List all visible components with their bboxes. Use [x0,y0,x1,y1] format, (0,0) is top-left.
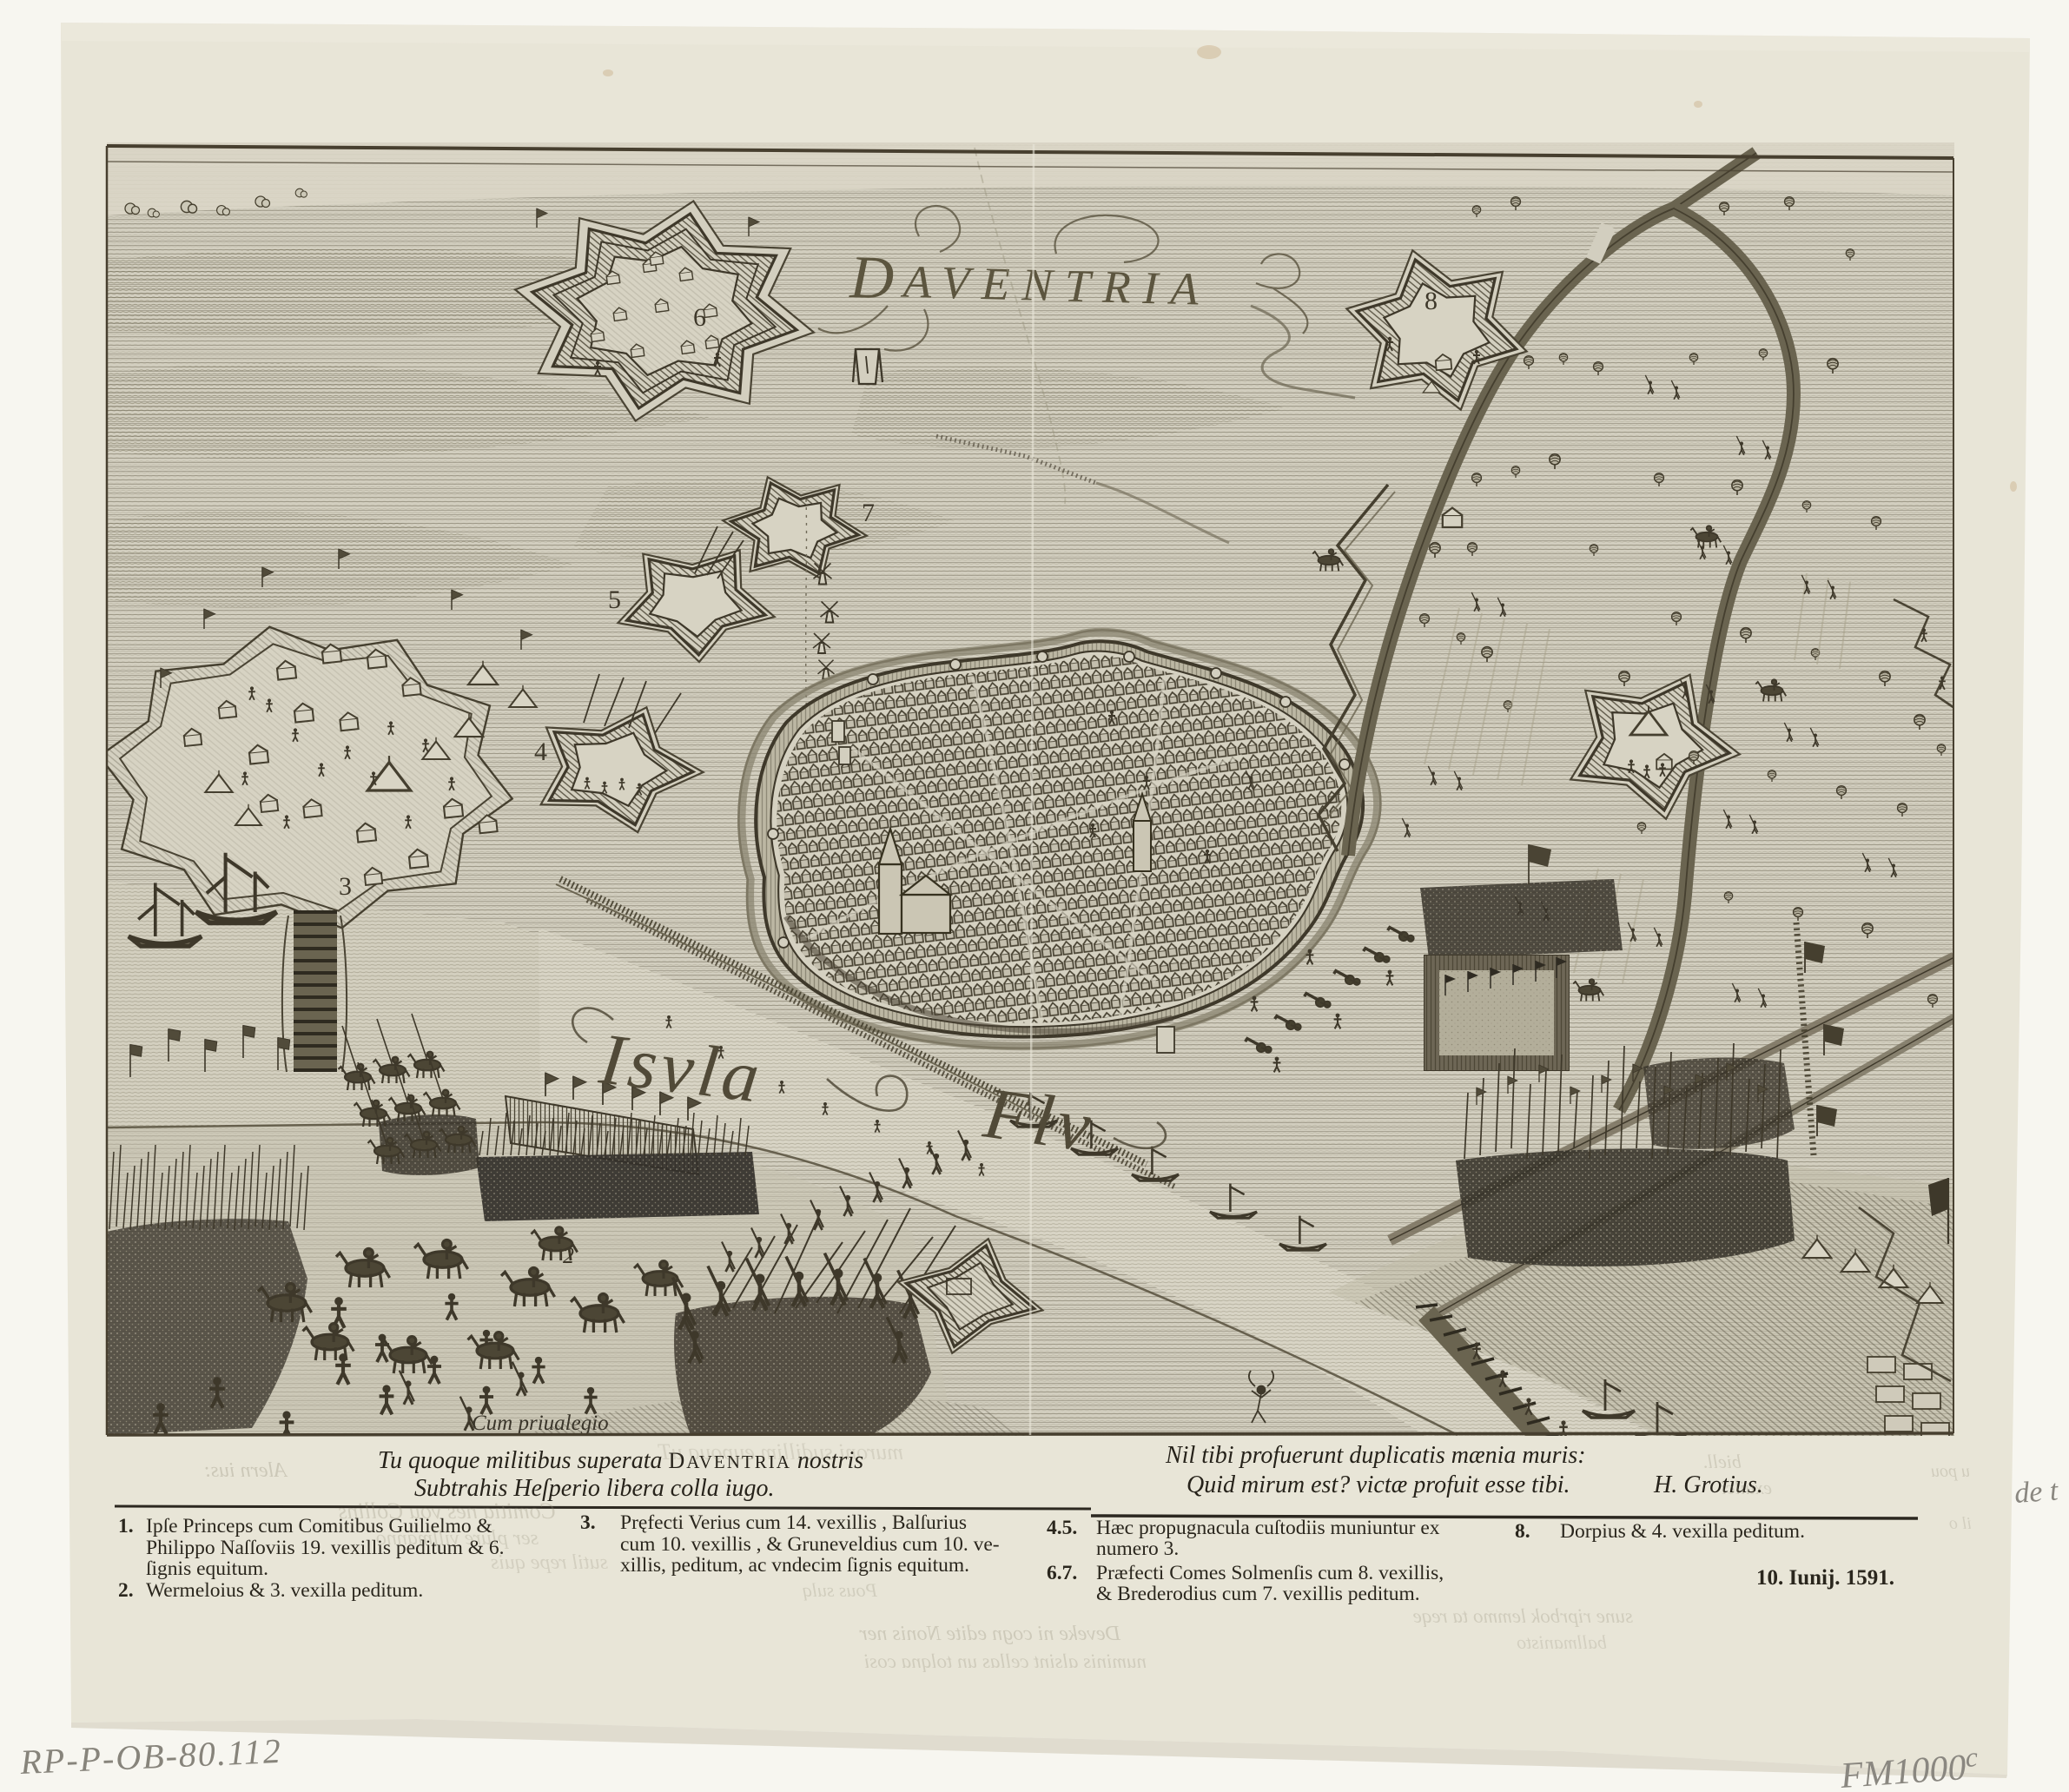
svg-text:Comitia nes vou Collins: Comitia nes vou Collins [338,1498,556,1524]
svg-text:8.: 8. [1515,1520,1530,1543]
svg-text:ſignis equitum.: ſignis equitum. [146,1557,268,1580]
svg-text:1.: 1. [118,1515,134,1537]
svg-text:Alern ius:: Alern ius: [204,1459,288,1482]
svg-text:5: 5 [608,585,621,614]
svg-text:u pou: u pou [1931,1462,1970,1481]
svg-text:Præfecti Comes Solmenſis cum 8: Præfecti Comes Solmenſis cum 8. vexillis… [1096,1562,1444,1584]
svg-text:Wermeloius & 3. vexilla pedit: Wermeloius & 3. vexilla peditum. [146,1579,423,1602]
svg-text:numero 3.: numero 3. [1096,1537,1179,1560]
svg-text:3.: 3. [580,1511,596,1534]
svg-text:7: 7 [862,499,875,527]
svg-text:numinis alsint cellas un tolqn: numinis alsint cellas un tolqna cosi [864,1650,1147,1672]
svg-text:Flv: Flv [978,1073,1100,1168]
svg-text:sutil repe quis: sutil repe quis [491,1551,608,1574]
svg-text:muroni sudillim eupouq uT: muroni sudillim eupouq uT [658,1439,903,1465]
svg-text:xillis, peditum, ac vndecim ſi: xillis, peditum, ac vndecim ſignis equit… [620,1554,969,1577]
svg-text:Deveke ni cogn edite Nonis n: Deveke ni cogn edite Nonis ner [859,1623,1121,1645]
svg-text:Quid mirum est? victæ profuit: Quid mirum est? victæ profuit esse tibi. [1187,1471,1570,1498]
svg-text:il o: il o [1949,1514,1972,1533]
svg-text:Pous sulq: Pous sulq [803,1579,878,1601]
svg-text:2: 2 [563,1243,574,1268]
svg-text:2.: 2. [118,1579,134,1602]
svg-text:& Brederodius cum 7. vexillis: & Brederodius cum 7. vexillis peditum. [1096,1583,1420,1605]
svg-text:4.5.: 4.5. [1047,1517,1077,1539]
svg-text:cum 10. vexillis , & Gruneveld: cum 10. vexillis , & Gruneveldius cum 10… [620,1533,1000,1556]
svg-text:sune riprbok lemmo ta reqe: sune riprbok lemmo ta reqe [1413,1605,1633,1627]
svg-text:Cum priualegio: Cum priualegio [472,1412,609,1435]
svg-text:3: 3 [339,872,352,901]
svg-text:ballmanisto: ballmanisto [1517,1631,1607,1653]
svg-text:Pręfecti Verius cum 14. vexil: Pręfecti Verius cum 14. vexillis , Balſu… [620,1511,967,1534]
svg-text:4: 4 [534,737,547,766]
svg-text:biell.: biell. [1702,1451,1742,1472]
svg-text:de t: de t [2013,1474,2060,1510]
svg-text:ser plure villmanno: ser plure villmanno [376,1527,539,1550]
svg-text:6.7.: 6.7. [1047,1562,1077,1584]
svg-text:8: 8 [1425,287,1438,315]
svg-text:exuilci: exuilci [1721,1477,1772,1498]
svg-text:Dorpius & 4. vexilla peditum.: Dorpius & 4. vexilla peditum. [1560,1520,1805,1543]
svg-text:Nil tibi profuerunt duplicatis: Nil tibi profuerunt duplicatis mænia mur… [1165,1442,1586,1469]
svg-text:Hæc propugnacula cuſtodiis mun: Hæc propugnacula cuſtodiis muniuntur ex [1096,1517,1440,1539]
svg-text:10. Iunij. 1591.: 10. Iunij. 1591. [1756,1566,1894,1590]
